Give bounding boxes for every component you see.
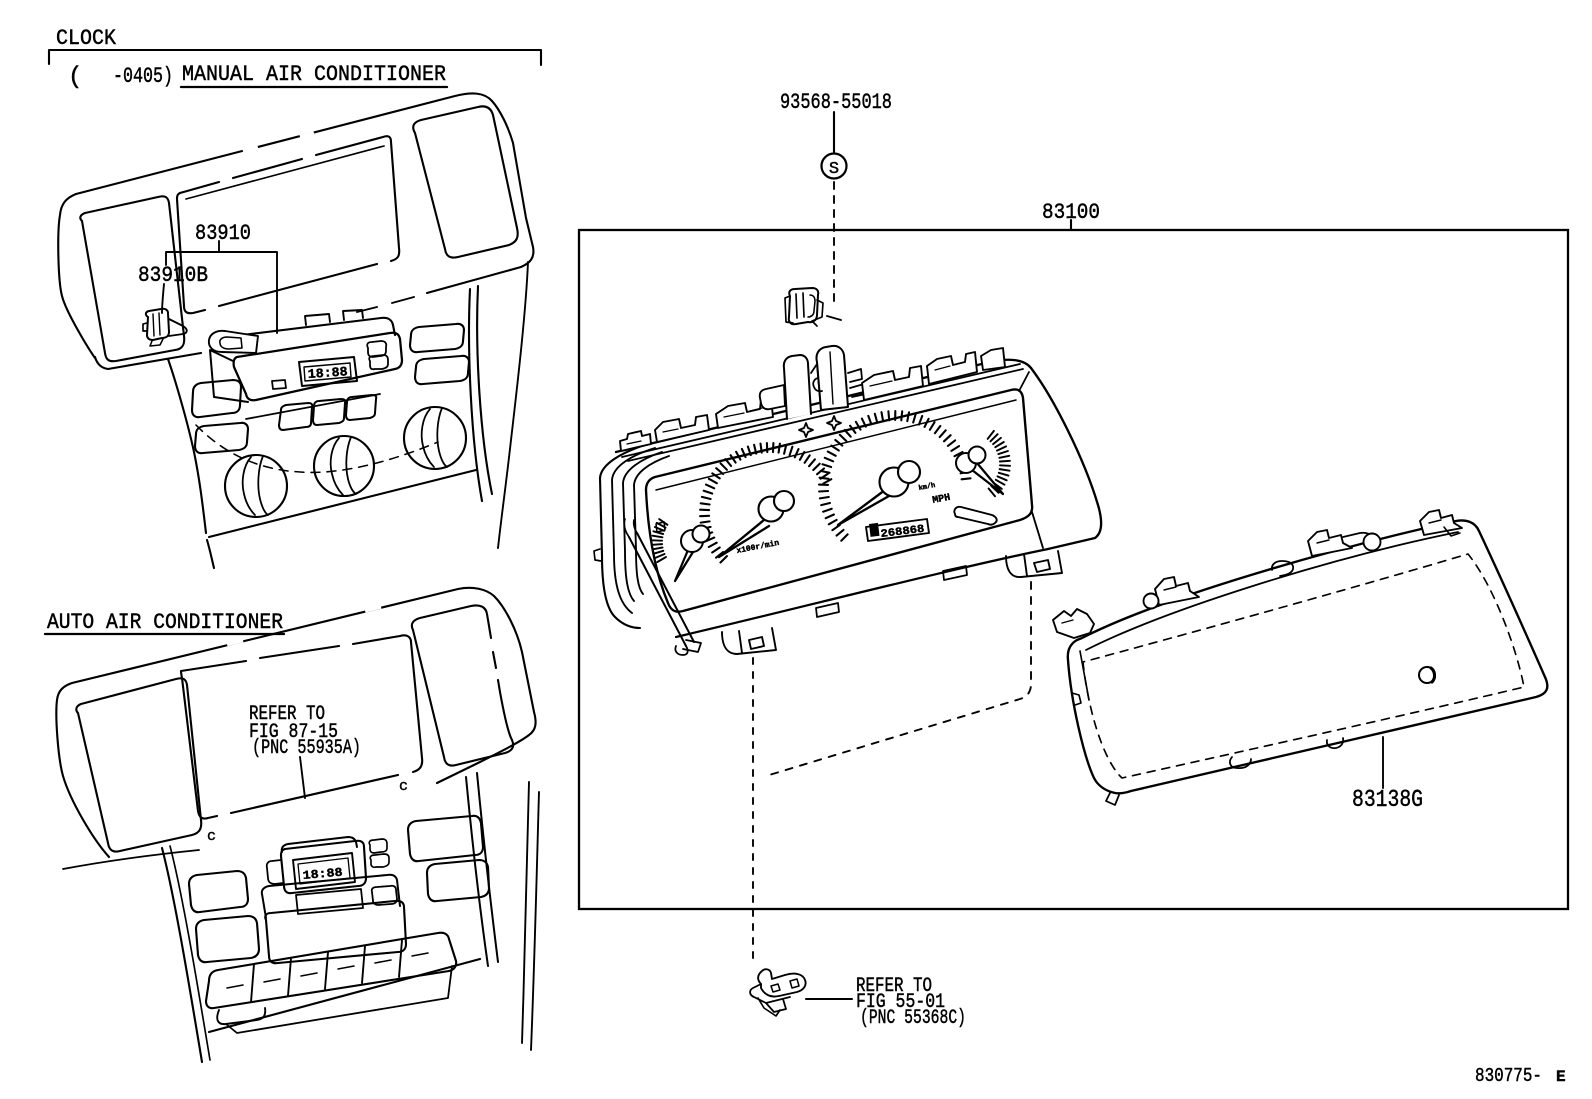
svg-text:830775-: 830775-: [1475, 1065, 1542, 1087]
svg-text:c: c: [399, 778, 408, 795]
svg-text:18:88: 18:88: [307, 364, 348, 382]
svg-text:E: E: [1556, 1068, 1566, 1086]
svg-text:93568-55018: 93568-55018: [780, 90, 892, 115]
svg-text:83910: 83910: [195, 221, 251, 246]
svg-text:(: (: [68, 64, 82, 91]
svg-text:CLOCK: CLOCK: [56, 26, 117, 51]
svg-text:S: S: [829, 160, 839, 179]
svg-text:AUTO AIR CONDITIONER: AUTO AIR CONDITIONER: [47, 610, 283, 635]
svg-text:MANUAL AIR CONDITIONER: MANUAL AIR CONDITIONER: [182, 62, 446, 87]
svg-text:(PNC 55935A): (PNC 55935A): [252, 737, 361, 760]
svg-text:c: c: [207, 828, 216, 845]
svg-text:83910B: 83910B: [138, 263, 208, 288]
svg-text:-0405): -0405): [113, 64, 173, 89]
svg-text:83138G: 83138G: [1352, 787, 1423, 814]
svg-text:(PNC 55368C): (PNC 55368C): [860, 1007, 966, 1030]
